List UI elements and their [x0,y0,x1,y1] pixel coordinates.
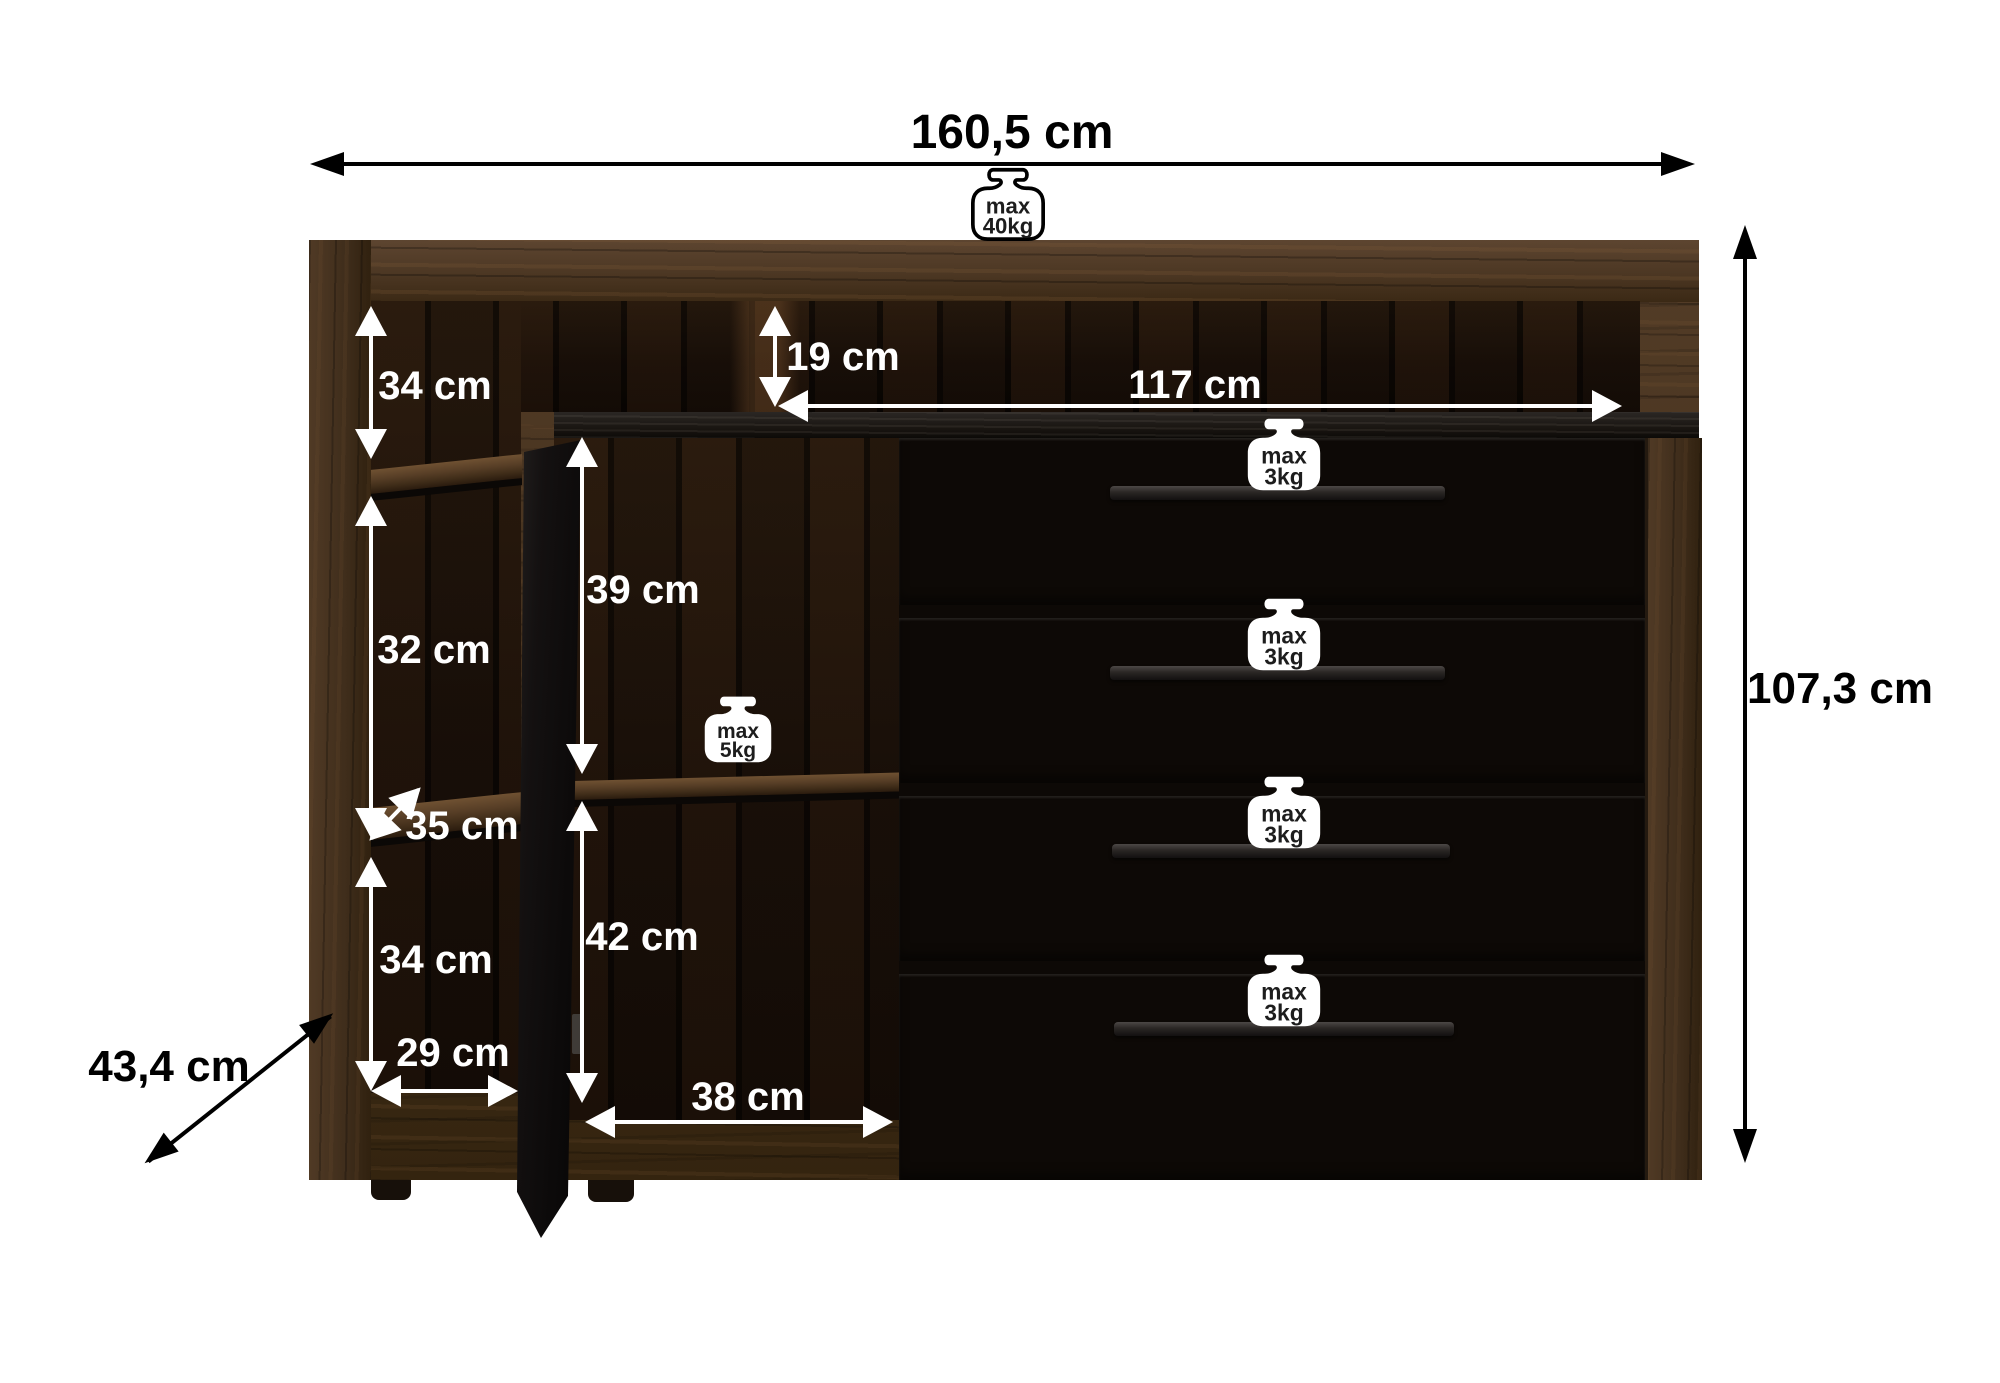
weight-limit-text: 3kg [1264,643,1303,669]
cabinet-right-side-panel [1645,438,1702,1180]
product-dimension-diagram: max 40kg max 5kg max 3kg max 3kg max 3kg… [0,0,2000,1383]
arrow-sw-head [137,1133,179,1173]
lower-section-top-edge [554,412,1699,438]
total-width-label: 160,5 cm [911,109,1114,157]
left-top-height-label: 34 cm [378,366,491,406]
arrow-right-head [488,1075,518,1107]
weight-limit-text: 3kg [1264,463,1303,489]
cabinet-top-panel [309,240,1699,302]
weight-limit-drawer-4-badge: max 3kg [1244,948,1324,1032]
arrow-left-head [371,1075,401,1107]
arrow-right-head [1592,390,1622,422]
arrow-right-head [863,1106,893,1138]
weight-limit-text: 40kg [983,214,1034,239]
drawer-width-label: 117 cm [1128,365,1261,405]
arrow-left-head [310,152,344,176]
arrow-right-head [1661,152,1695,176]
left-middle-height-arrow [369,522,373,812]
weight-limit-drawer-1-badge: max 3kg [1244,412,1324,496]
niche-height-label: 19 cm [786,337,899,377]
arrow-up-head [566,437,598,467]
arrow-down-head [1733,1129,1757,1163]
total-height-label: 107,3 cm [1747,667,1933,711]
left-width-label: 29 cm [396,1033,509,1073]
arrow-up-head [566,801,598,831]
left-bottom-height-arrow [369,883,373,1065]
weight-limit-text: 3kg [1264,821,1303,847]
left-top-height-arrow [369,332,373,433]
shelf-depth-label: 35 cm [405,806,518,846]
door-top-height-arrow [580,463,584,748]
left-width-arrow [397,1089,492,1093]
drawer-width-arrow [804,404,1596,408]
door-width-label: 38 cm [691,1077,804,1117]
door-bottom-height-arrow [580,827,584,1077]
arrow-up-head [355,857,387,887]
arrow-down-head [566,1073,598,1103]
door-width-arrow [611,1120,867,1124]
weight-limit-drawer-3-badge: max 3kg [1244,770,1324,854]
total-depth-label: 43,4 cm [88,1045,249,1089]
weight-limit-text: 3kg [1264,999,1303,1025]
weight-limit-drawer-2-badge: max 3kg [1244,592,1324,676]
arrow-left-head [585,1106,615,1138]
arrow-left-head [778,390,808,422]
left-middle-height-label: 32 cm [377,630,490,670]
cabinet-foot-middle [588,1180,634,1202]
arrow-down-head [355,429,387,459]
weight-limit-top-badge: max 40kg [969,167,1047,241]
door-top-height-label: 39 cm [586,570,699,610]
total-width-arrow [338,162,1664,166]
arrow-down-head [566,744,598,774]
left-bottom-height-label: 34 cm [379,940,492,980]
total-height-arrow [1743,253,1747,1135]
door-bottom-height-label: 42 cm [585,917,698,957]
arrow-up-head [355,496,387,526]
arrow-up-head [355,306,387,336]
top-niche [371,301,1640,412]
arrow-up-head [1733,225,1757,259]
cabinet-foot-left [371,1180,411,1200]
niche-height-arrow [773,332,777,381]
arrow-up-head [759,306,791,336]
weight-limit-shelf-badge: max 5kg [701,694,775,764]
weight-limit-text: 5kg [720,739,756,762]
